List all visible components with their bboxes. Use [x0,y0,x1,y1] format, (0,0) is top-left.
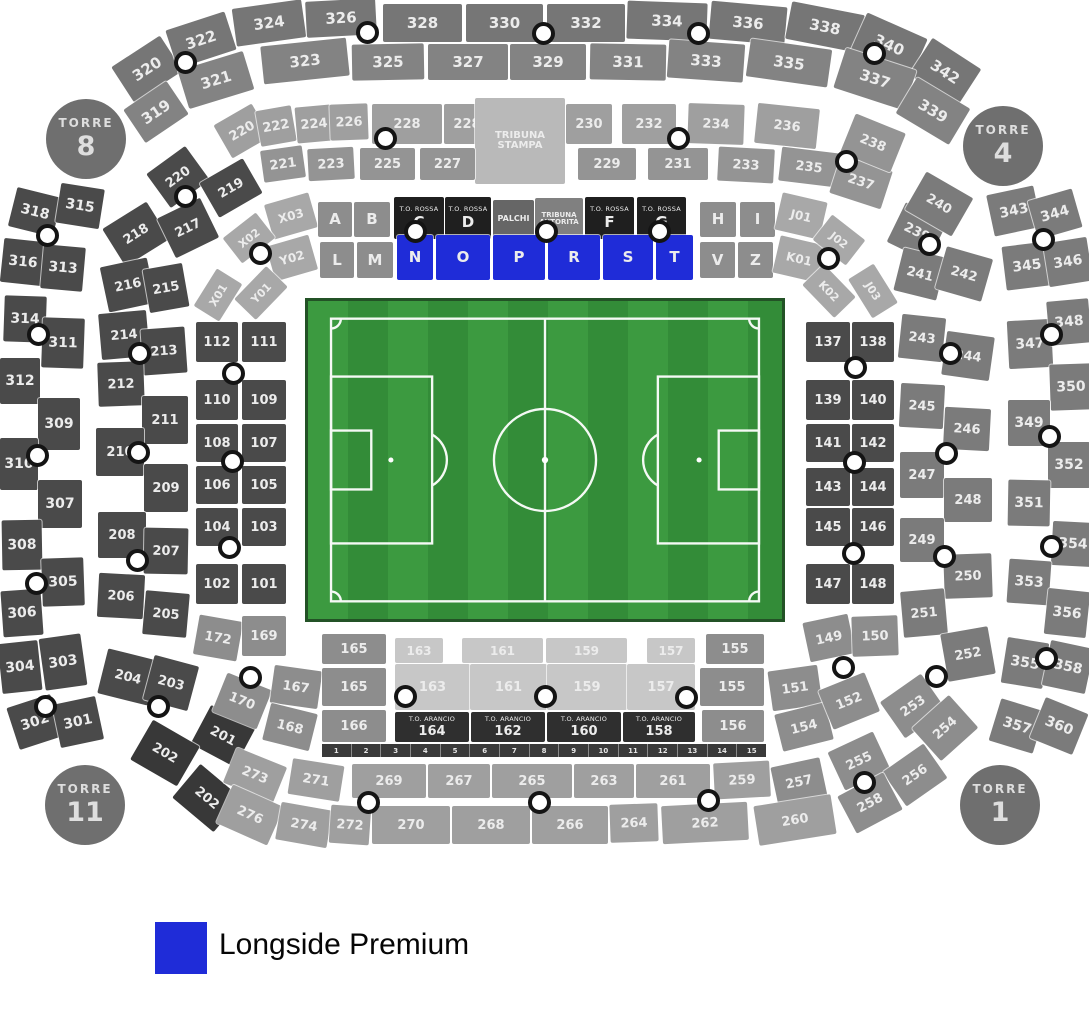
section-label: 146 [859,521,886,534]
torre-label: TORRE [975,123,1030,137]
section-label: 249 [908,534,935,547]
section-label: 254 [931,714,960,742]
location-marker [835,150,858,173]
section-label: PALCHI [498,215,530,223]
section-105: 105 [242,466,286,504]
section-sublabel: T.O. ROSSA [642,206,681,213]
section-166: 166 [322,710,386,742]
section-112: 112 [196,322,238,362]
section-109: 109 [242,380,286,420]
section-label: 266 [556,819,583,832]
torre-11: TORRE11 [45,765,125,845]
section-label: 165 [340,643,367,656]
section-251: 251 [900,588,948,638]
section-label: 258 [855,791,885,815]
section-label: P [514,250,525,265]
section-313: 313 [40,244,86,291]
section-224: 224 [294,104,333,143]
section-label: 228 [393,118,420,131]
section-label: 259 [728,773,756,787]
section-label: 160 [570,725,597,738]
location-marker [832,656,855,679]
section-palchi: PALCHI [493,200,534,238]
section-label: 263 [590,775,617,788]
location-marker [394,685,417,708]
section-label: 209 [152,482,179,495]
section-label: 217 [173,216,203,240]
location-marker [667,127,690,150]
section-165: 165 [322,634,386,664]
section-label: 267 [445,775,472,788]
location-marker [853,771,876,794]
section-sublabel: T.O. ROSSA [400,206,439,213]
section-label: 342 [928,57,962,87]
section-327: 327 [428,44,508,80]
section-label: 346 [1052,253,1083,271]
section-label: 360 [1043,714,1075,738]
section-356: 356 [1044,588,1089,638]
section-label: 272 [336,818,364,833]
strip-number: 11 [619,744,649,757]
strip-number: 5 [441,744,471,757]
section-label: X03 [277,207,305,226]
section-label: 218 [121,221,151,246]
section-label: 256 [900,762,930,788]
location-marker [174,51,197,74]
section-v: V [700,242,735,278]
section-label: 227 [434,158,461,171]
section-label: 232 [635,118,662,131]
section-label: 204 [113,667,142,686]
section-label: 320 [130,54,164,84]
torre-label: TORRE [972,782,1027,796]
section-label: 162 [494,725,521,738]
strip-number: 6 [470,744,500,757]
section-label: 155 [721,643,748,656]
location-marker [222,362,245,385]
section-h: H [700,202,736,237]
section-s[interactable]: S [603,235,653,280]
section-226: 226 [329,103,368,140]
section-label: 154 [789,717,818,736]
section-label: 138 [859,336,886,349]
section-label: R [568,250,580,265]
section-label: 261 [659,775,686,788]
torre-4: TORRE4 [963,106,1043,186]
section-label: 169 [250,630,277,643]
strip-number: 13 [678,744,708,757]
section-label: 216 [113,276,142,294]
section-label: 234 [702,117,730,131]
section-m: M [357,242,393,278]
section-label: 336 [732,14,765,32]
section-label: 103 [250,521,277,534]
section-222: 222 [255,105,297,147]
section-label: 225 [374,158,401,171]
section-a: A [318,202,352,237]
section-label: J01 [789,208,812,224]
section-p[interactable]: P [493,235,545,280]
section-label: 303 [48,653,79,671]
section-label: 148 [859,578,886,591]
section-264: 264 [609,803,658,843]
location-marker [933,545,956,568]
location-marker [218,536,241,559]
section-231: 231 [648,148,708,180]
section-label: F [604,215,614,230]
location-marker [221,450,244,473]
section-label: 276 [235,804,265,827]
section-label: 231 [664,158,691,171]
section-163: 163 [395,638,443,663]
section-336: 336 [708,1,787,45]
section-label: 271 [302,771,331,788]
section-label: 205 [152,606,180,621]
section-label: 208 [108,529,135,542]
section-101: 101 [242,564,286,604]
section-label: 240 [924,192,954,217]
section-139: 139 [806,380,850,420]
section-110: 110 [196,380,238,420]
section-label: 262 [691,816,719,830]
section-303: 303 [39,633,88,690]
section-l: L [320,242,354,278]
section-270: 270 [372,806,450,844]
section-207: 207 [144,528,189,575]
section-252: 252 [940,626,996,682]
section-label: 246 [953,422,981,436]
section-label: 233 [732,158,760,172]
section-label: 326 [325,10,357,27]
section-b: B [354,202,390,237]
location-marker [357,791,380,814]
section-147: 147 [806,564,850,604]
section-label: 330 [489,16,520,31]
section-label: 335 [772,53,805,72]
section-148: 148 [852,564,894,604]
section-label: 260 [781,811,810,828]
section-label: 245 [908,399,936,413]
section-label: 338 [808,17,842,38]
section-o[interactable]: O [436,235,490,280]
strip-number: 15 [737,744,766,757]
section-144: 144 [852,468,894,506]
section-i: I [740,202,775,237]
section-label: 215 [151,279,180,297]
section-label: 311 [48,335,78,350]
section-label: 356 [1052,605,1083,622]
section-label: 309 [44,417,73,431]
location-marker [174,185,197,208]
section-103: 103 [242,508,286,546]
section-label: 321 [199,68,233,91]
section-268: 268 [452,806,530,844]
section-label: 334 [651,13,683,29]
section-143: 143 [806,468,850,506]
location-marker [528,791,551,814]
section-label: 268 [477,819,504,832]
section-331: 331 [590,43,667,80]
location-marker [1038,425,1061,448]
section-164: T.O. ARANCIO164 [395,712,469,742]
section-label: 257 [784,773,813,791]
section-label: 144 [859,481,886,494]
section-label: 329 [532,55,563,70]
strip-number: 2 [352,744,382,757]
section-label: 155 [718,681,745,694]
section-333: 333 [667,39,745,82]
section-label: O [457,250,470,265]
torre-label: TORRE [57,782,112,796]
section-r[interactable]: R [548,235,600,280]
section-sublabel: T.O. ROSSA [449,206,488,213]
location-marker [844,356,867,379]
section-label: 107 [250,437,277,450]
location-marker [534,685,557,708]
section-label: X01 [207,282,229,308]
section-label: T [669,250,679,265]
section-label: 111 [250,336,277,349]
section-label: 172 [203,629,232,647]
section-146: 146 [852,508,894,546]
section-label: 305 [48,574,78,589]
section-label: 212 [107,377,135,391]
torre-1: TORRE1 [960,765,1040,845]
section-label: 143 [814,481,841,494]
section-label: 269 [375,775,402,788]
section-158: T.O. ARANCIO158 [623,712,695,742]
stadium-map: 123456789101112131415 Longside Premium 3… [0,0,1089,1032]
section-label: 223 [317,157,345,171]
section-263: 263 [574,764,634,798]
location-marker [26,444,49,467]
section-label: 161 [490,645,515,657]
location-marker [1035,647,1058,670]
location-marker [535,220,558,243]
section-label: 349 [1014,416,1043,430]
section-label: K01 [785,250,813,268]
strip-number: 9 [559,744,589,757]
section-label: 306 [7,605,37,621]
strip-number: 3 [381,744,411,757]
section-172: 172 [193,614,243,661]
section-label: 331 [612,54,644,70]
section-169: 169 [242,616,286,656]
section-150: 150 [851,615,898,657]
location-marker [27,323,50,346]
section-label: 270 [397,819,424,832]
legend-swatch [155,922,207,974]
section-159: 159 [546,638,627,663]
location-marker [925,665,948,688]
section-label: 350 [1056,379,1086,394]
section-323: 323 [260,38,350,85]
location-marker [918,233,941,256]
section-label: 109 [250,394,277,407]
location-marker [404,220,427,243]
section-335: 335 [746,38,832,87]
section-label: 220 [227,119,257,144]
section-label: Z [750,253,761,268]
section-107: 107 [242,424,286,462]
section-225: 225 [360,148,415,180]
section-label: 255 [844,749,874,772]
section-label: 253 [898,693,928,719]
location-marker [34,695,57,718]
section-sublabel: T.O. ARANCIO [561,716,607,723]
section-label: 139 [814,394,841,407]
location-marker [817,247,840,270]
location-marker [128,342,151,365]
section-111: 111 [242,322,286,362]
location-marker [147,695,170,718]
section-329: 329 [510,44,586,80]
section-315: 315 [55,183,105,229]
section-f: T.O. ROSSAF [585,197,634,239]
section-label: 203 [156,673,186,693]
section-label: 219 [216,176,246,201]
section-248: 248 [944,478,992,522]
section-311: 311 [41,317,85,368]
location-marker [239,666,262,689]
section-label: 247 [908,469,935,482]
section-label: 151 [781,680,810,697]
section-label: 163 [406,645,431,657]
section-label: 301 [62,712,94,732]
location-marker [249,242,272,265]
section-140: 140 [852,380,894,420]
section-351: 351 [1008,480,1051,527]
torre-number: 11 [66,797,104,828]
section-230: 230 [566,104,612,144]
section-label: 241 [905,264,934,283]
torre-number: 8 [77,131,96,162]
section-label: 104 [203,521,230,534]
section-307: 307 [38,480,82,528]
location-marker [127,441,150,464]
location-marker [532,22,555,45]
section-label: 327 [452,55,483,70]
section-label: 206 [107,589,135,603]
pitch-markings [308,301,782,619]
section-label: 163 [419,681,446,694]
strip-number: 4 [411,744,441,757]
section-label: 312 [5,374,34,388]
torre-8: TORRE8 [46,99,126,179]
torre-number: 4 [994,138,1013,169]
section-label: B [366,212,377,227]
section-z: Z [738,242,773,278]
section-j03: J03 [848,264,898,319]
section-137: 137 [806,322,850,362]
section-label: K02 [817,279,841,304]
row-number-strip: 123456789101112131415 [322,744,766,757]
section-352: 352 [1048,442,1089,488]
section-label: 201 [208,724,238,748]
section-label: 252 [953,645,982,663]
location-marker [687,22,710,45]
location-marker [374,127,397,150]
section-label: 141 [814,437,841,450]
section-label: 251 [910,605,938,620]
section-309: 309 [38,398,80,450]
section-d: T.O. ROSSAD [445,197,491,239]
section-159: 159 [547,664,627,710]
section-206: 206 [97,573,145,619]
section-label: M [368,253,383,268]
section-label: 242 [949,264,979,284]
section-260: 260 [753,794,836,846]
section-sublabel: T.O. ROSSA [590,206,629,213]
section-label: 224 [300,116,328,131]
section-label: 213 [150,344,178,359]
section-label: 147 [814,578,841,591]
section-353: 353 [1007,559,1052,606]
section-215: 215 [142,263,189,313]
strip-number: 10 [589,744,619,757]
section-label: 315 [64,197,95,215]
section-label: 345 [1012,257,1043,274]
section-label: 164 [418,725,445,738]
section-325: 325 [352,43,425,80]
section-218: 218 [102,202,169,267]
section-271: 271 [288,758,345,802]
section-306: 306 [0,589,43,638]
section-label: L [332,253,342,268]
section-label: 339 [916,97,951,126]
location-marker [1032,228,1055,251]
section-label: 353 [1014,574,1044,590]
section-223: 223 [307,147,355,181]
section-sublabel: T.O. ARANCIO [636,716,682,723]
section-label: 165 [340,681,367,694]
section-102: 102 [196,564,238,604]
location-marker [939,342,962,365]
section-234: 234 [687,103,744,145]
section-316: 316 [0,238,46,286]
section-312: 312 [0,358,40,404]
section-sublabel: T.O. ARANCIO [485,716,531,723]
section-label: 106 [203,479,230,492]
section-212: 212 [97,361,145,407]
section-156: 156 [702,710,764,742]
section-label: H [712,212,725,227]
section-label: J03 [863,280,883,302]
section-label: 322 [184,28,218,52]
location-marker [697,789,720,812]
location-marker [1040,323,1063,346]
section-label: 304 [5,659,36,676]
section-360: 360 [1029,697,1088,755]
section-205: 205 [142,590,190,638]
section-label: 102 [203,578,230,591]
section-label: I [755,212,761,227]
section-label: 264 [620,816,648,830]
section-211: 211 [142,396,188,444]
section-267: 267 [428,764,490,798]
section-label: 207 [152,544,179,557]
section-155: 155 [700,668,764,706]
section-label: 159 [573,681,600,694]
section-label: 236 [773,118,801,134]
section-label: 226 [335,115,363,129]
location-marker [648,220,671,243]
section-350: 350 [1049,363,1089,410]
section-label: 250 [954,569,982,583]
section-label: 325 [372,54,404,70]
section-label: 202 [192,784,221,811]
section-304: 304 [0,640,43,694]
